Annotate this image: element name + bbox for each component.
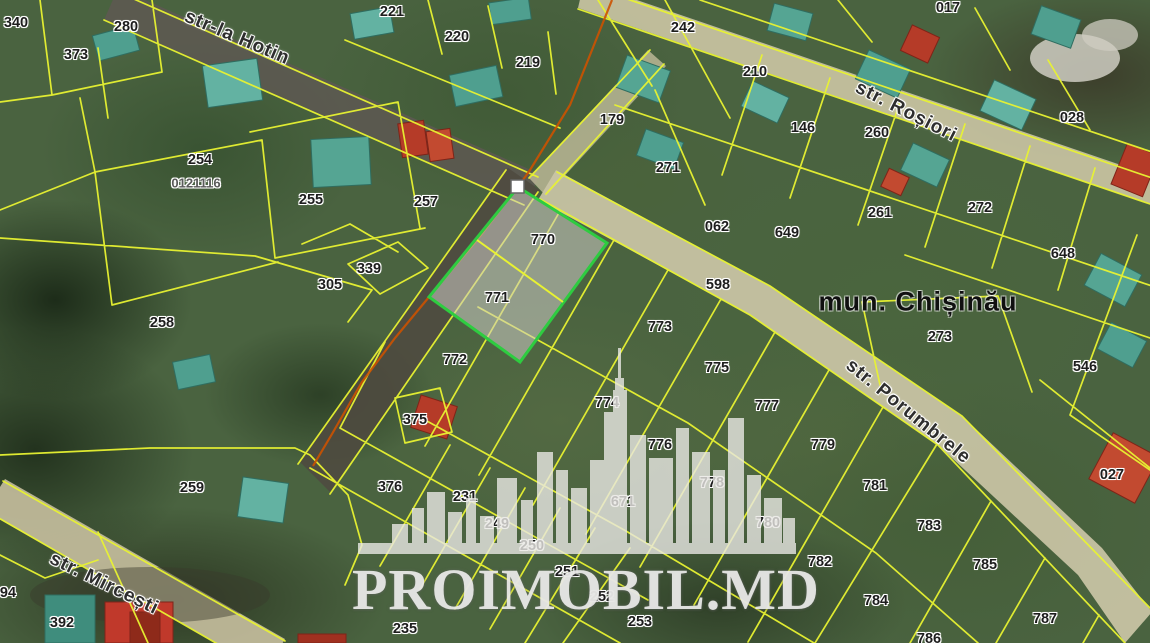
parcel-label: 146	[791, 120, 815, 136]
parcel-label: 273	[928, 329, 952, 345]
parcel-label: 776	[648, 437, 672, 453]
bare-ground-patch	[1082, 19, 1138, 51]
parcel-label: 781	[863, 478, 887, 494]
parcel-label: 0121116	[171, 176, 220, 191]
junction-marker	[511, 180, 524, 193]
parcel-label: 94	[0, 585, 16, 601]
cadastral-map[interactable]: 3403732802540121116255257339305258221220…	[0, 0, 1150, 643]
parcel-label: 255	[299, 192, 323, 208]
parcel-label: 774	[595, 395, 619, 411]
parcel-label: 773	[648, 319, 672, 335]
parcel-label: 261	[868, 205, 892, 221]
parcel-label: 260	[865, 125, 889, 141]
parcel-label: 221	[380, 4, 404, 20]
parcel-label: 780	[756, 515, 780, 531]
parcel-label: 785	[973, 557, 997, 573]
parcel-label: 242	[671, 20, 695, 36]
parcel-label: 235	[393, 621, 417, 637]
parcel-label: 648	[1051, 246, 1075, 262]
parcel-label: 375	[403, 412, 427, 428]
parcel-label: 231	[453, 489, 477, 505]
parcel-label: 280	[114, 19, 138, 35]
municipality-label: mun. Chișinău	[818, 287, 1017, 318]
parcel-label: 254	[188, 152, 212, 168]
parcel-label: 782	[808, 554, 832, 570]
parcel-label: 778	[700, 475, 724, 491]
parcel-label: 339	[357, 261, 381, 277]
parcel-label: 775	[705, 360, 729, 376]
parcel-label: 252	[590, 589, 614, 605]
parcel-label: 373	[64, 47, 88, 63]
parcel-label: 786	[917, 631, 941, 643]
parcel-label: 179	[600, 112, 624, 128]
parcel-label: 671	[611, 494, 635, 510]
parcel-label: 259	[180, 480, 204, 496]
parcel-label: 777	[755, 398, 779, 414]
parcel-label: 770	[531, 232, 555, 248]
parcel-label: 305	[318, 277, 342, 293]
parcel-label: 787	[1033, 611, 1057, 627]
parcel-label: 220	[445, 29, 469, 45]
parcel-label: 210	[743, 64, 767, 80]
parcel-label: 649	[775, 225, 799, 241]
parcel-label: 250	[520, 538, 544, 554]
parcel-label: 017	[936, 0, 960, 16]
parcel-label: 784	[864, 593, 888, 609]
parcel-label: 771	[485, 290, 509, 306]
parcel-label: 028	[1060, 110, 1084, 126]
parcel-label: 062	[705, 219, 729, 235]
parcel-label: 772	[443, 352, 467, 368]
parcel-label: 257	[414, 194, 438, 210]
parcel-label: 027	[1100, 467, 1124, 483]
parcel-label: 376	[378, 479, 402, 495]
parcel-label: 271	[656, 160, 680, 176]
parcel-label: 392	[50, 615, 74, 631]
parcel-label: 249	[485, 516, 509, 532]
parcel-label: 598	[706, 277, 730, 293]
parcel-label: 219	[516, 55, 540, 71]
parcel-label: 779	[811, 437, 835, 453]
building-roofs	[45, 0, 1147, 643]
parcel-label: 783	[917, 518, 941, 534]
parcel-label: 546	[1073, 359, 1097, 375]
parcel-label: 253	[628, 614, 652, 630]
parcel-label: 272	[968, 200, 992, 216]
parcel-label: 251	[555, 564, 579, 580]
parcel-label: 258	[150, 315, 174, 331]
parcel-label: 340	[4, 15, 28, 31]
